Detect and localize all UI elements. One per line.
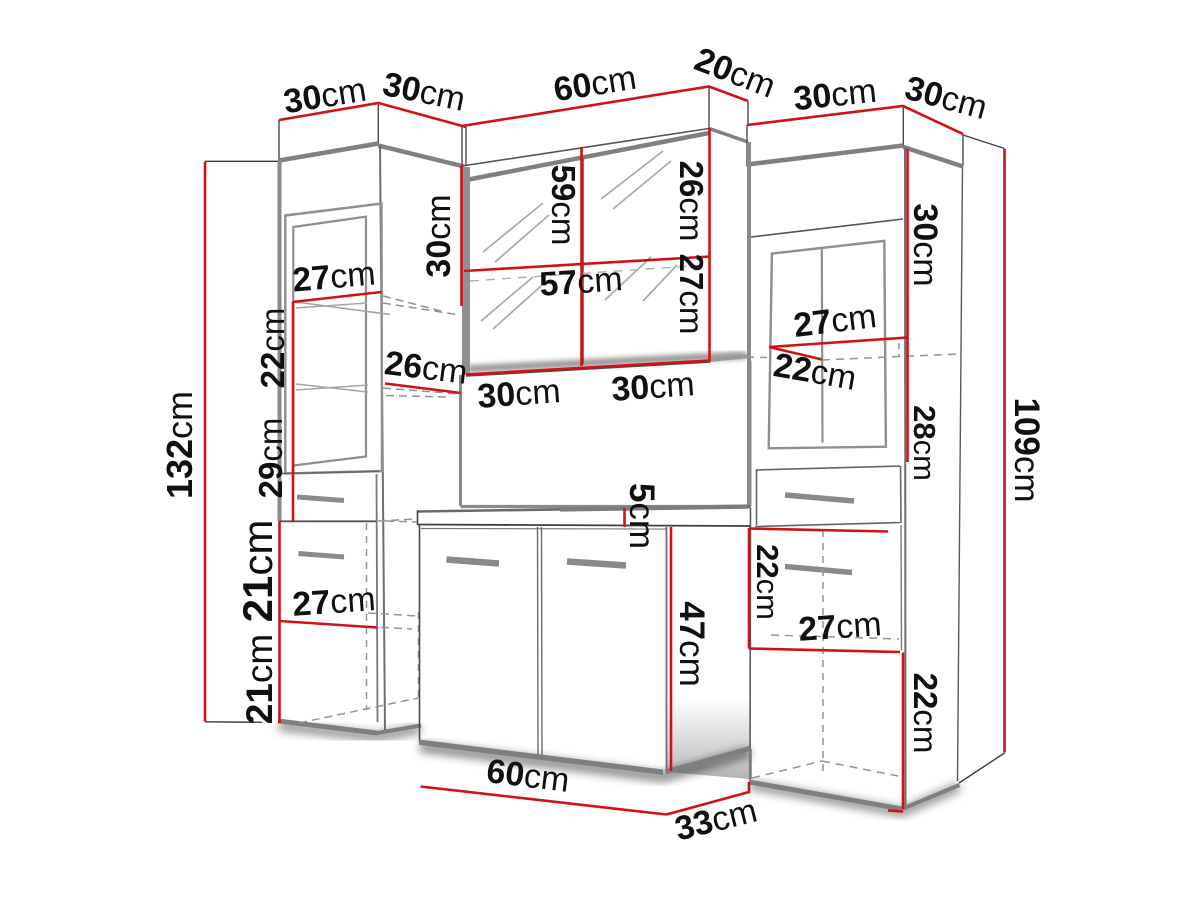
- svg-text:132cm: 132cm: [159, 391, 200, 499]
- svg-text:57cm: 57cm: [538, 260, 624, 304]
- svg-text:27cm: 27cm: [291, 580, 377, 624]
- svg-text:27cm: 27cm: [674, 254, 711, 335]
- svg-text:30cm: 30cm: [476, 372, 562, 416]
- svg-text:27cm: 27cm: [797, 605, 883, 649]
- svg-text:22cm: 22cm: [751, 544, 786, 620]
- svg-text:21cm: 21cm: [234, 520, 281, 623]
- svg-text:21cm: 21cm: [239, 634, 280, 724]
- svg-text:109cm: 109cm: [1008, 397, 1047, 502]
- svg-text:47cm: 47cm: [673, 601, 712, 687]
- svg-text:5cm: 5cm: [623, 483, 662, 549]
- svg-text:29cm: 29cm: [252, 418, 289, 499]
- svg-text:26cm: 26cm: [674, 161, 711, 242]
- svg-text:22cm: 22cm: [254, 308, 291, 389]
- svg-text:30cm: 30cm: [610, 365, 696, 409]
- svg-text:27cm: 27cm: [291, 254, 377, 299]
- svg-text:22cm: 22cm: [908, 673, 945, 754]
- svg-text:28cm: 28cm: [908, 405, 943, 481]
- svg-text:30cm: 30cm: [906, 203, 944, 286]
- svg-text:59cm: 59cm: [546, 165, 583, 246]
- svg-text:30cm: 30cm: [420, 194, 458, 277]
